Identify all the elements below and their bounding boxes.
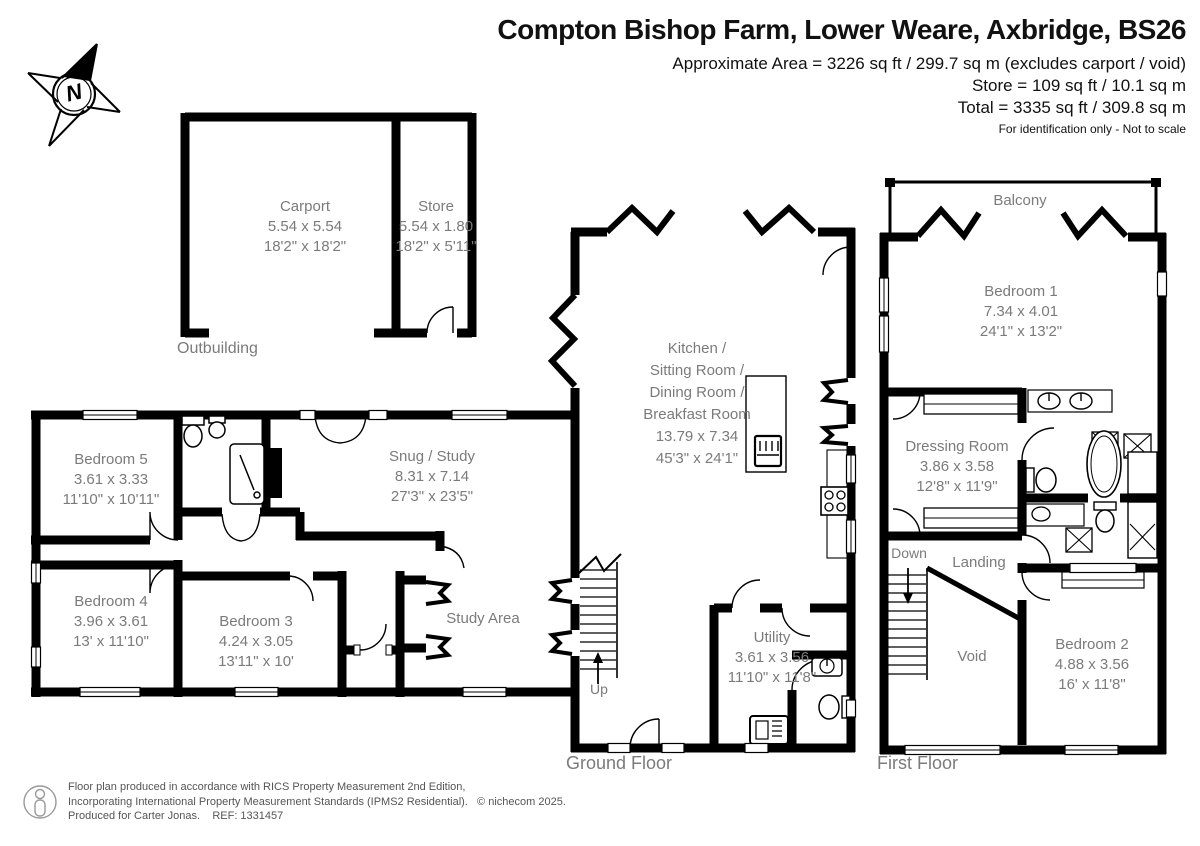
copyright: © nichecom 2025.	[477, 796, 566, 808]
chimney-block	[264, 448, 282, 498]
room-label-utility: Utility 3.61 x 3.56 11'10" x 11'8"	[728, 628, 816, 688]
stairs-up-icon	[578, 554, 621, 684]
room-label-bedroom-4: Bedroom 4 3.96 x 3.61 13' x 11'10"	[73, 592, 149, 652]
footer-ref: REF: 1331457	[212, 810, 283, 822]
footer-line1: Floor plan produced in accordance with R…	[68, 780, 566, 795]
first-floor-label: First Floor	[877, 753, 958, 774]
stairs-down-label: Down	[891, 545, 927, 561]
total-area: Total = 3335 sq ft / 309.8 sq m	[497, 98, 1186, 118]
room-label-snug-study: Snug / Study 8.31 x 7.14 27'3" x 23'5"	[389, 447, 475, 507]
footer-line3: Produced for Carter Jonas. REF: 1331457	[68, 809, 566, 824]
page-title: Compton Bishop Farm, Lower Weare, Axbrid…	[497, 14, 1186, 46]
room-label-study-area: Study Area	[446, 609, 519, 629]
room-label-void: Void	[957, 647, 986, 667]
room-label-bedroom-3: Bedroom 3 4.24 x 3.05 13'11" x 10'	[218, 612, 294, 672]
balcony-post	[885, 178, 895, 187]
footer-text: Floor plan produced in accordance with R…	[68, 780, 566, 824]
room-label-carport: Carport 5.54 x 5.54 18'2" x 18'2"	[264, 197, 346, 257]
kitchen-fixtures	[746, 376, 848, 558]
room-label-store: Store 5.54 x 1.80 18'2" x 5'11"	[395, 197, 476, 257]
footer-line2: Incorporating International Property Mea…	[68, 795, 566, 810]
room-label-bedroom-1: Bedroom 1 7.34 x 4.01 24'1" x 13'2"	[980, 282, 1062, 342]
balcony-post	[1151, 178, 1161, 187]
bathroom-fixtures	[182, 416, 264, 504]
disclaimer: For identification only - Not to scale	[497, 122, 1186, 136]
header: Compton Bishop Farm, Lower Weare, Axbrid…	[497, 14, 1186, 136]
approx-area: Approximate Area = 3226 sq ft / 299.7 sq…	[497, 54, 1186, 74]
room-label-kitchen: Kitchen / Sitting Room / Dining Room / B…	[643, 338, 751, 470]
stairs-down-icon	[888, 568, 1022, 680]
room-label-balcony: Balcony	[993, 191, 1046, 211]
folding-door-icon	[918, 210, 1126, 236]
stairs-up-label: Up	[590, 681, 608, 697]
floorplan-page: Compton Bishop Farm, Lower Weare, Axbrid…	[0, 0, 1200, 846]
person-scale-icon	[22, 780, 58, 824]
ground-floor-label: Ground Floor	[566, 753, 672, 774]
footer: Floor plan produced in accordance with R…	[22, 780, 566, 824]
store-area: Store = 109 sq ft / 10.1 sq m	[497, 76, 1186, 96]
room-label-bedroom-5: Bedroom 5 3.61 x 3.33 11'10" x 10'11"	[63, 450, 160, 510]
outbuilding-label: Outbuilding	[177, 340, 258, 358]
room-label-landing: Landing	[952, 553, 1005, 573]
room-label-dressing-room: Dressing Room 3.86 x 3.58 12'8" x 11'9"	[905, 437, 1008, 497]
room-label-bedroom-2: Bedroom 2 4.88 x 3.56 16' x 11'8"	[1055, 635, 1129, 695]
store-door	[427, 307, 453, 333]
